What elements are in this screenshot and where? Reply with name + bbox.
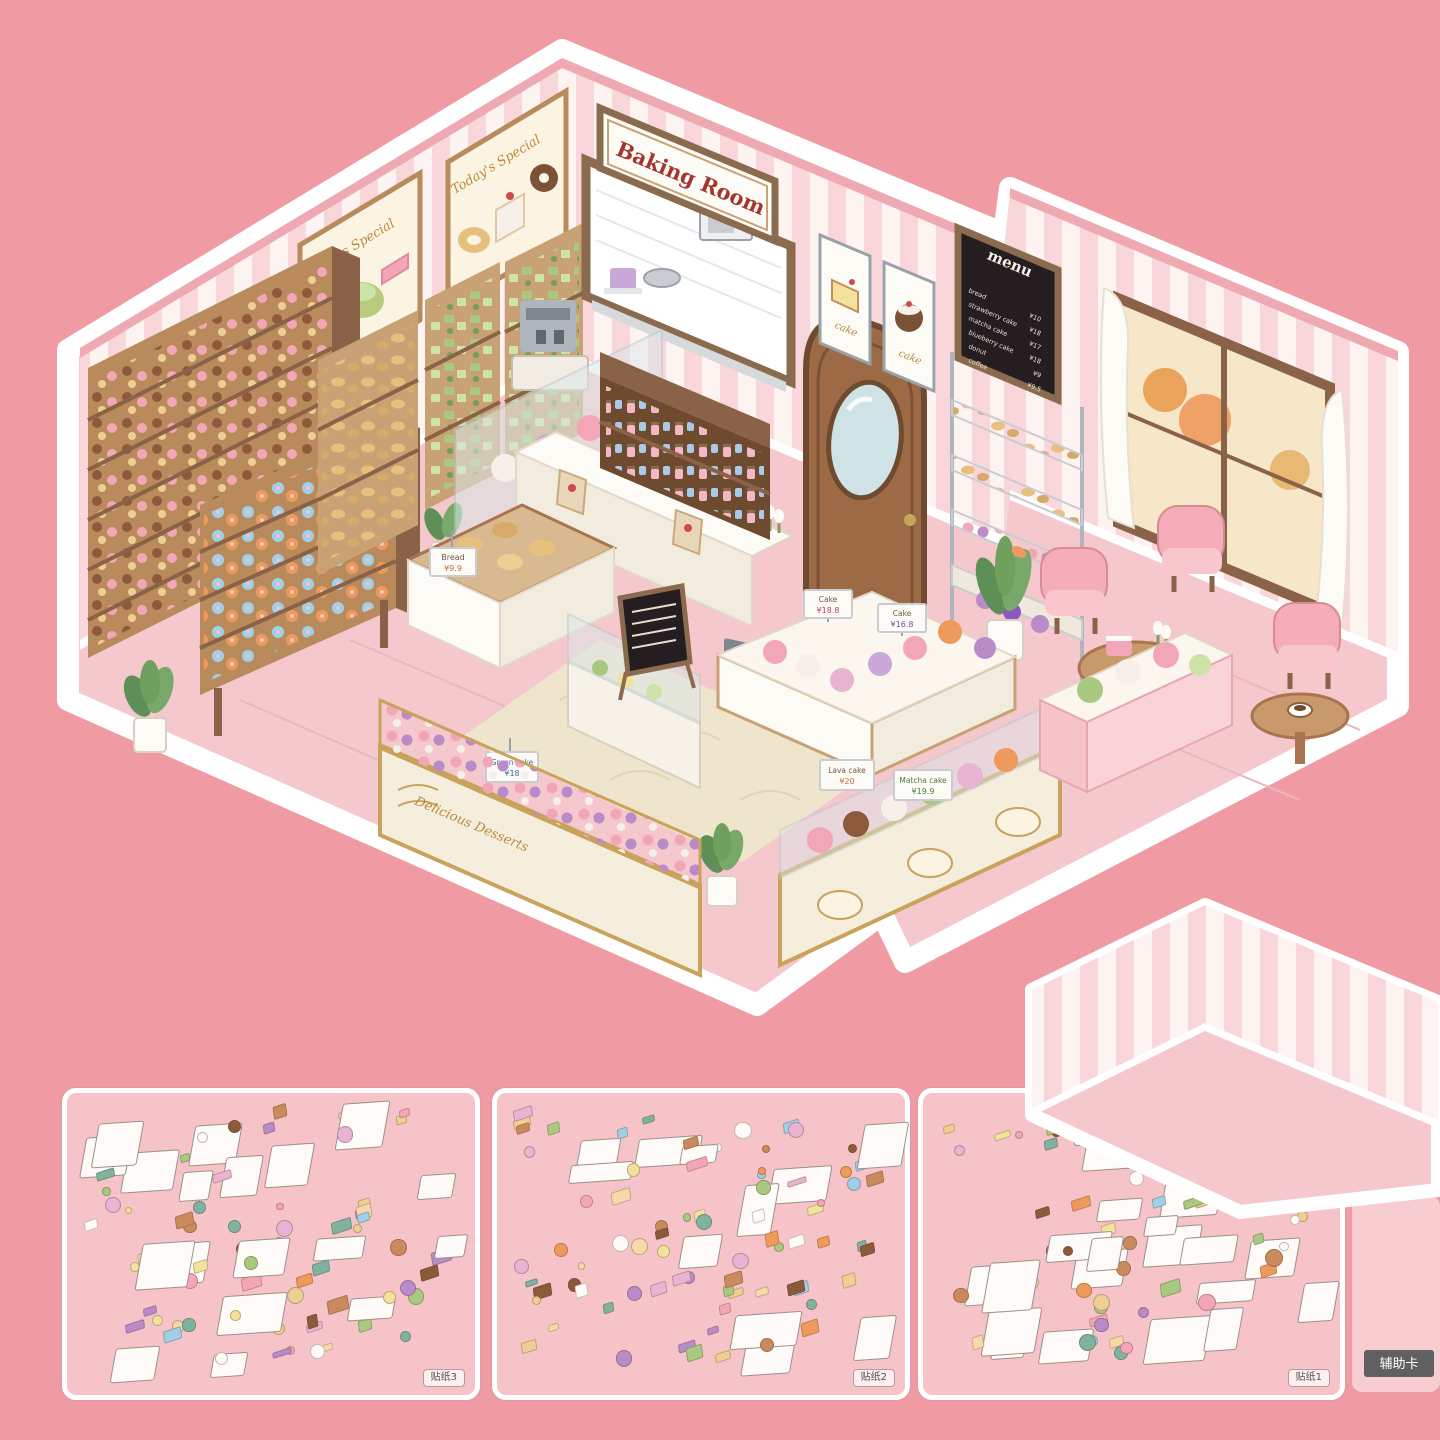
easel-chalkboard xyxy=(620,586,694,700)
sheet-sticker-item xyxy=(603,1302,615,1315)
sheet-sticker-item xyxy=(1079,1334,1096,1351)
sheet-sticker-item xyxy=(1093,1126,1131,1149)
sheet-sticker-item xyxy=(1143,1314,1213,1364)
sheet-sticker-item xyxy=(1297,1281,1340,1323)
cake-poster-1: cake xyxy=(820,235,870,364)
floor-planks xyxy=(240,640,1360,800)
sheet-sticker-item xyxy=(276,1220,294,1238)
sheet-sticker-item xyxy=(182,1318,195,1331)
sheet-sticker-item xyxy=(1076,1283,1092,1299)
sheet-sticker-item xyxy=(627,1286,642,1301)
svg-text:blueberry cake: blueberry cake xyxy=(967,328,1015,354)
sheet-sticker-item xyxy=(754,1286,768,1298)
front-donut-shelf xyxy=(200,418,420,736)
sheet-sticker-item xyxy=(232,1238,290,1279)
sheet-sticker-item xyxy=(841,1271,856,1289)
svg-text:Today's Special: Today's Special xyxy=(449,132,544,197)
svg-text:donut: donut xyxy=(967,342,988,357)
sheet-sticker-item xyxy=(1159,1164,1226,1219)
sheet-sticker-item xyxy=(617,1127,629,1141)
sheet-sticker-item xyxy=(110,1345,161,1383)
sheet-sticker-item xyxy=(762,1145,770,1153)
sheet-sticker-item xyxy=(532,1296,541,1305)
sheet-sticker-item xyxy=(83,1217,98,1231)
center-jar-shelf xyxy=(600,352,770,540)
sheet-sticker-item xyxy=(105,1197,121,1213)
svg-text:¥20: ¥20 xyxy=(839,777,854,786)
checkout-counter xyxy=(516,432,792,677)
sheet-sticker-item xyxy=(1035,1206,1050,1219)
sheet-sticker-item xyxy=(707,1325,719,1336)
sheet-sticker-item xyxy=(228,1220,241,1233)
svg-text:¥18: ¥18 xyxy=(504,769,519,778)
rug xyxy=(462,640,880,862)
green-cake-sign: Green cake ¥18 xyxy=(486,738,538,782)
svg-text:Matcha cake: Matcha cake xyxy=(899,776,947,785)
matcha-cake-sign: Matcha cake ¥19.9 xyxy=(894,770,952,800)
sheet-sticker-item xyxy=(788,1233,806,1249)
cake-slice-icon xyxy=(100,448,128,504)
sheet-sticker-item xyxy=(1044,1137,1059,1152)
sheet-sticker-item xyxy=(312,1235,366,1261)
sheet-sticker-item xyxy=(390,1239,407,1256)
sheet-sticker-item xyxy=(1265,1249,1283,1267)
sheet-sticker-item xyxy=(642,1114,656,1125)
left-bakery-shelf xyxy=(88,246,360,658)
sticker-sheet-2: 贴纸2 xyxy=(492,1088,910,1400)
svg-text:strawberry cake: strawberry cake xyxy=(967,300,1018,328)
shopping-bags xyxy=(557,470,702,554)
svg-text:cake: cake xyxy=(897,348,923,367)
sticker-sheet-3-label: 贴纸3 xyxy=(423,1369,465,1387)
svg-text:Cake: Cake xyxy=(819,595,838,604)
poster-stage: 贴纸3 贴纸2 贴纸1 xyxy=(0,0,1440,1440)
sheet-sticker-item xyxy=(264,1143,315,1189)
right-wall xyxy=(1010,192,1398,660)
sticker-sheet-3: 贴纸3 xyxy=(62,1088,480,1400)
sheet-sticker-item xyxy=(1203,1307,1244,1353)
svg-text:¥19.9: ¥19.9 xyxy=(912,787,935,796)
sticker-sheet-1-label: 贴纸1 xyxy=(1288,1369,1330,1387)
left-wall xyxy=(80,62,562,648)
doughnuts-poster-caption: Cream Doughnuts xyxy=(200,426,260,466)
sheet-sticker-item xyxy=(1015,1131,1023,1139)
svg-text:Lava cake: Lava cake xyxy=(828,766,866,775)
sheet-sticker-item xyxy=(580,1195,593,1208)
sheet-sticker-item xyxy=(1290,1215,1301,1226)
baguette-rack xyxy=(952,352,1082,700)
sheet-sticker-item xyxy=(152,1315,163,1326)
sheet-sticker-item xyxy=(981,1307,1043,1357)
rug-pattern xyxy=(560,691,800,800)
cake-poster-2: cake xyxy=(884,262,934,391)
matcha-shelf-a xyxy=(425,262,500,510)
sheet-sticker-item xyxy=(554,1243,568,1257)
sheet-sticker-item xyxy=(616,1350,633,1367)
sheet-sticker-item xyxy=(276,1203,284,1211)
sticker-sheet-1: 贴纸1 xyxy=(918,1088,1345,1400)
coffee-machine xyxy=(512,300,588,390)
sheet-sticker-item xyxy=(714,1350,730,1364)
sheet-sticker-item xyxy=(434,1234,469,1259)
sheet-sticker-item xyxy=(732,1253,748,1269)
room-sticker-outline xyxy=(68,50,1398,1005)
sheet-sticker-item xyxy=(788,1122,804,1138)
svg-text:¥9.9: ¥9.9 xyxy=(444,564,462,573)
svg-text:Delicious Desserts: Delicious Desserts xyxy=(411,794,531,856)
sheet-sticker-item xyxy=(1179,1234,1239,1265)
sheet-sticker-item xyxy=(611,1187,632,1206)
svg-text:cake: cake xyxy=(833,320,859,339)
back-wall xyxy=(562,62,1004,545)
wall-pillar xyxy=(1004,192,1010,545)
sheet-sticker-item xyxy=(1143,1215,1179,1237)
street-window xyxy=(1101,288,1348,1097)
svg-text:¥9.5: ¥9.5 xyxy=(1026,381,1042,394)
arched-door xyxy=(806,319,924,658)
sheet-sticker-item xyxy=(657,1245,670,1258)
sheet-sticker-item xyxy=(524,1146,536,1158)
sheet-sticker-item xyxy=(295,1272,313,1288)
svg-text:¥9: ¥9 xyxy=(1032,369,1043,380)
curtains xyxy=(1101,288,1348,626)
svg-text:辅助卡: 辅助卡 xyxy=(1379,1357,1418,1372)
sheet-sticker-item xyxy=(1292,1187,1308,1204)
cash-register xyxy=(722,638,756,677)
sheet-sticker-item xyxy=(353,1224,362,1233)
sheet-sticker-item xyxy=(853,1315,897,1361)
left-wall-posters xyxy=(90,286,312,530)
sheet-sticker-item xyxy=(546,1121,560,1136)
auxiliary-card-translucent-strip xyxy=(1352,1196,1440,1392)
sheet-sticker-item xyxy=(943,1124,955,1135)
menu-title: menu xyxy=(985,246,1036,281)
svg-text:¥10: ¥10 xyxy=(1028,312,1043,324)
doughnut-icon xyxy=(216,368,240,392)
svg-text:Cake: Cake xyxy=(893,609,912,618)
sheet-sticker-item xyxy=(197,1132,208,1143)
sheet-sticker-item xyxy=(272,1103,287,1121)
sheet-sticker-item xyxy=(90,1121,144,1170)
sheet-sticker-item xyxy=(310,1344,325,1359)
svg-text:¥18.8: ¥18.8 xyxy=(817,606,840,615)
sheet-sticker-item xyxy=(356,1211,370,1224)
sheet-sticker-item xyxy=(734,1122,751,1139)
svg-text:Green cake: Green cake xyxy=(491,758,534,767)
cafe-table-2 xyxy=(1252,694,1348,764)
sheet-sticker-item xyxy=(1217,1164,1230,1181)
sheet-sticker-item xyxy=(1085,1236,1124,1272)
sheet-sticker-item xyxy=(678,1234,723,1270)
svg-text:¥16.8: ¥16.8 xyxy=(891,620,914,629)
sheet-sticker-item xyxy=(1281,1164,1295,1177)
front-cake-case: Lava cake ¥20 Matcha cake ¥19.9 xyxy=(780,700,1060,965)
sheet-sticker-item xyxy=(263,1121,276,1135)
baking-room-sign: Baking Room xyxy=(600,108,775,241)
svg-text:¥18: ¥18 xyxy=(1028,326,1043,338)
svg-text:¥18: ¥18 xyxy=(1028,354,1043,366)
sheet-sticker-item xyxy=(578,1262,585,1269)
sheet-sticker-item xyxy=(102,1187,110,1195)
sheet-sticker-item xyxy=(400,1331,411,1342)
cake-sign-right: Cake ¥16.8 xyxy=(878,604,926,636)
cake-sign-left: Cake ¥18.8 xyxy=(804,590,852,622)
sheet-sticker-item xyxy=(417,1173,457,1200)
sheet-sticker-item xyxy=(287,1287,304,1304)
sheet-sticker-item xyxy=(840,1166,852,1178)
todays-special-poster-1: Today's Special xyxy=(300,173,420,392)
cafe-table-1 xyxy=(1079,621,1191,724)
sheet-sticker-item xyxy=(1278,1120,1292,1131)
sheet-sticker-item xyxy=(1279,1242,1289,1252)
sheet-sticker-item xyxy=(516,1122,531,1136)
sheet-sticker-item xyxy=(994,1129,1012,1141)
menu-chalkboard: menu bread ¥10 strawberry cake ¥18 match… xyxy=(958,228,1058,400)
sheet-sticker-item xyxy=(1094,1318,1109,1333)
svg-text:Baking Room: Baking Room xyxy=(613,136,769,220)
sheet-sticker-item xyxy=(215,1352,228,1365)
center-glass-cases: Green cake ¥18 xyxy=(486,614,700,788)
sheet-sticker-item xyxy=(848,1144,857,1153)
svg-text:Bread: Bread xyxy=(441,553,465,562)
sheet-sticker-item xyxy=(163,1326,182,1344)
sheet-sticker-item xyxy=(631,1238,648,1255)
sheet-sticker-item xyxy=(649,1280,667,1297)
counter-tulips xyxy=(765,505,784,533)
svg-text:Today's Special: Today's Special xyxy=(303,216,398,281)
bread-island-table: Bread ¥9.9 xyxy=(408,505,614,668)
glass-cake-case xyxy=(455,330,662,605)
sheet-sticker-item xyxy=(718,1302,731,1316)
sheet-sticker-item xyxy=(312,1259,331,1277)
sheet-sticker-item xyxy=(568,1161,634,1184)
sheet-sticker-item xyxy=(327,1295,350,1316)
sheet-sticker-item xyxy=(806,1299,817,1310)
sheet-sticker-item xyxy=(866,1170,885,1188)
sheet-sticker-item xyxy=(817,1199,825,1207)
strawberry-cake-icon xyxy=(156,404,188,436)
sheet-sticker-item xyxy=(125,1207,132,1214)
delicious-desserts-case: Delicious Desserts xyxy=(380,700,700,975)
sheet-sticker-item xyxy=(216,1292,288,1336)
sheet-sticker-item xyxy=(419,1264,439,1282)
cafe-seating xyxy=(1041,506,1348,764)
sheet-sticker-item xyxy=(547,1323,558,1334)
sheet-sticker-item xyxy=(857,1121,909,1169)
sheet-sticker-item xyxy=(178,1170,214,1202)
svg-text:¥17: ¥17 xyxy=(1028,340,1043,352)
sheet-sticker-item xyxy=(272,1347,292,1360)
sheet-sticker-item xyxy=(847,1177,862,1192)
sheet-sticker-item xyxy=(801,1318,820,1338)
pink-front-case xyxy=(1040,633,1232,792)
sheet-sticker-item xyxy=(627,1163,641,1177)
lava-cake-sign: Lava cake ¥20 xyxy=(820,760,874,790)
svg-text:bread: bread xyxy=(967,286,987,301)
sheet-sticker-item xyxy=(953,1288,968,1303)
sheet-sticker-item xyxy=(574,1282,589,1299)
baking-room-window xyxy=(586,160,791,392)
sheet-sticker-item xyxy=(1120,1342,1132,1354)
sheet-sticker-item xyxy=(337,1126,353,1142)
sheet-sticker-item xyxy=(1206,1132,1246,1153)
sheet-sticker-item xyxy=(1095,1197,1143,1222)
sheet-sticker-item xyxy=(134,1241,195,1292)
cake-display-counters: Cake ¥18.8 Cake ¥16.8 xyxy=(718,590,1015,775)
sheet-sticker-item xyxy=(193,1201,206,1214)
sheet-sticker-item xyxy=(1138,1307,1149,1318)
sheet-sticker-item xyxy=(1198,1294,1216,1312)
sheet-sticker-item xyxy=(683,1213,692,1222)
auxiliary-card-badge: 辅助卡 xyxy=(1364,1350,1434,1377)
sheet-sticker-item xyxy=(514,1259,529,1274)
coffee-cup-icon xyxy=(272,351,303,378)
svg-text:matcha cake: matcha cake xyxy=(967,314,1009,338)
sheet-sticker-item xyxy=(817,1234,831,1248)
sheet-sticker-item xyxy=(981,1259,1041,1313)
todays-special-poster-2: Today's Special xyxy=(448,91,566,309)
sheet-sticker-item xyxy=(330,1217,351,1235)
sheet-sticker-item xyxy=(1071,1195,1092,1212)
sheet-sticker-item xyxy=(696,1214,712,1230)
sheet-sticker-item xyxy=(954,1145,965,1156)
sheet-sticker-item xyxy=(1160,1277,1182,1297)
svg-text:coffee: coffee xyxy=(967,356,989,371)
bread-package-shelf xyxy=(318,310,418,575)
door-knob xyxy=(904,514,916,526)
sheet-sticker-item xyxy=(1129,1171,1144,1186)
sheet-sticker-item xyxy=(612,1235,629,1252)
potted-plants xyxy=(118,500,1037,906)
bread-price-sign: Bread ¥9.9 xyxy=(430,530,476,576)
sheet-sticker-item xyxy=(521,1338,538,1354)
sticker-sheet-2-label: 贴纸2 xyxy=(853,1369,895,1387)
matcha-shelf-b xyxy=(505,223,583,472)
sheet-sticker-item xyxy=(756,1180,770,1194)
sheet-sticker-item xyxy=(125,1319,145,1334)
